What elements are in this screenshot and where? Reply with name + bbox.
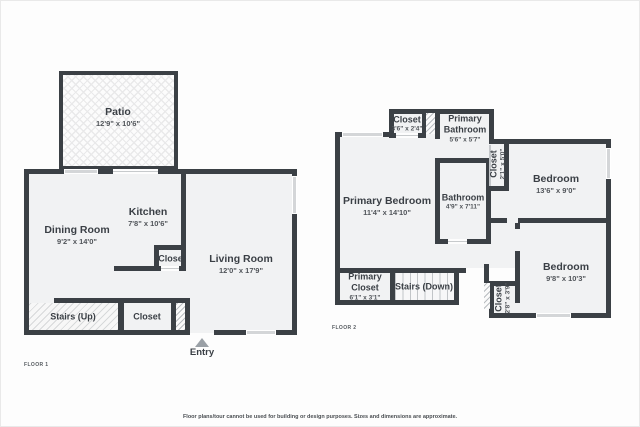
- wall: [214, 330, 246, 335]
- entry-closet-label: Closet: [133, 311, 161, 322]
- primary-bedroom-label: Primary Bedroom 11'4" x 14'10": [343, 195, 431, 218]
- wall: [114, 266, 159, 271]
- wall: [489, 313, 536, 318]
- wall: [515, 251, 520, 303]
- sliding-door-opening: [113, 169, 158, 174]
- wall: [118, 298, 124, 335]
- top-closet-label: Closet 3'6" x 2'4": [392, 114, 423, 133]
- kitchen-label: Kitchen 7'8" x 10'6": [128, 206, 168, 229]
- entry-label: Entry: [190, 347, 214, 359]
- hall-closet-label: Closet 2'1" x 5'0": [489, 149, 508, 180]
- wall: [515, 223, 520, 229]
- bathroom-label: Bathroom 4'9" x 7'11": [442, 192, 485, 211]
- wall: [276, 330, 297, 335]
- stairs-down-label: Stairs (Down): [395, 281, 453, 292]
- disclaimer-text: Floor plans/tour cannot be used for buil…: [1, 414, 639, 420]
- stairs-up-label: Stairs (Up): [50, 311, 96, 322]
- wall: [389, 133, 396, 138]
- window: [292, 176, 297, 214]
- living-room-label: Living Room 12'0" x 17'9": [209, 253, 273, 276]
- bedroom-top-label: Bedroom 13'6" x 9'0": [533, 173, 579, 196]
- wall: [383, 132, 389, 137]
- wall: [98, 169, 113, 174]
- bedroom-bottom-label: Bedroom 9'8" x 10'3": [543, 261, 589, 284]
- wall: [24, 169, 64, 174]
- primary-bathroom-label: Primary Bathroom 5'6" x 5'7": [444, 114, 487, 145]
- door-opening: [448, 239, 467, 244]
- floor-plan-image: Patio 12'9" x 10'6" Dini: [0, 0, 640, 427]
- wall: [292, 169, 297, 176]
- wall: [606, 139, 611, 148]
- window: [64, 169, 98, 174]
- wall: [467, 239, 491, 244]
- window: [536, 313, 571, 318]
- wall: [335, 132, 340, 305]
- wall: [571, 313, 611, 318]
- window: [342, 132, 383, 137]
- dining-room-label: Dining Room 9'2" x 14'0": [44, 224, 109, 247]
- wall: [518, 218, 611, 223]
- wall: [489, 218, 507, 223]
- kitchen-closet-label: Closet: [158, 253, 186, 264]
- wall: [179, 266, 186, 271]
- wall: [435, 239, 448, 244]
- window: [246, 330, 276, 335]
- patio-label: Patio 12'9" x 10'6": [96, 106, 140, 129]
- floor2-tag: FLOOR 2: [332, 325, 356, 331]
- wall: [489, 186, 509, 191]
- wall: [435, 158, 491, 163]
- wall: [292, 214, 297, 335]
- floor1-tag: FLOOR 1: [24, 362, 48, 368]
- hatch-strip: [176, 303, 185, 330]
- primary-closet-label: Primary Closet 6'1" x 3'1": [348, 272, 382, 303]
- wall: [606, 179, 611, 318]
- bottom-closet-label: Closet 2'8" x 3'9": [494, 283, 513, 314]
- door-opening: [396, 133, 418, 138]
- wall: [185, 298, 190, 335]
- hatch-strip: [484, 283, 490, 309]
- door-opening: [161, 266, 179, 271]
- wall: [24, 330, 190, 335]
- entry-arrow-icon: [195, 338, 209, 347]
- wall: [154, 266, 161, 271]
- wall: [435, 109, 440, 139]
- window: [606, 148, 611, 179]
- wall: [158, 169, 297, 174]
- wall: [435, 158, 440, 244]
